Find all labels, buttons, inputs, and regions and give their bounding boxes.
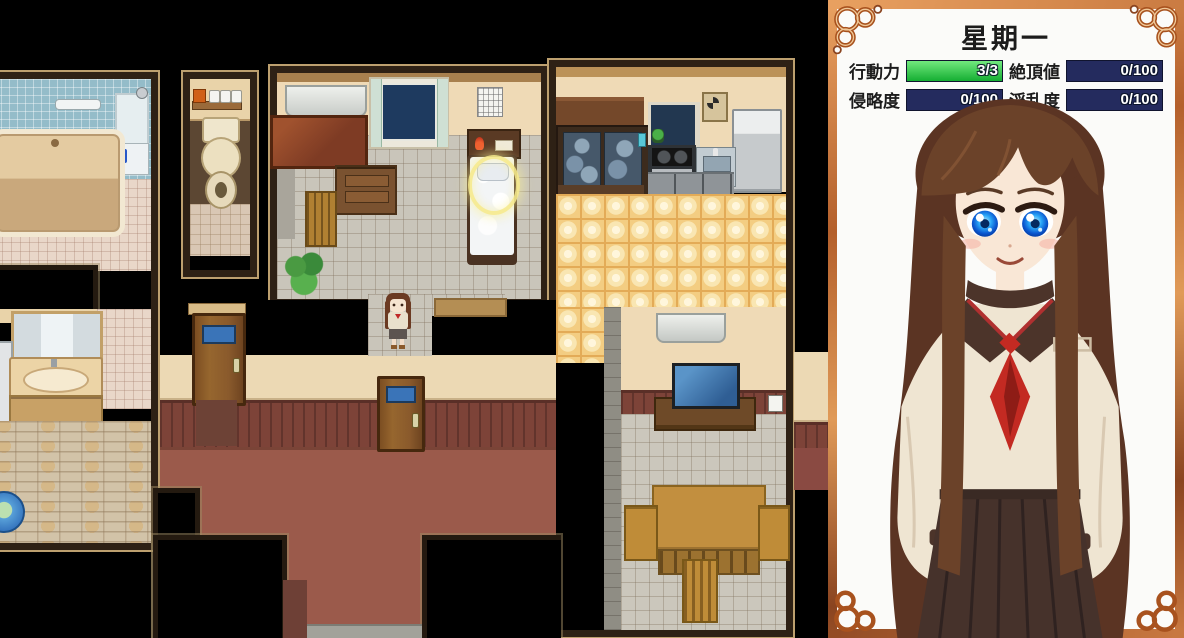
potted-plant — [283, 249, 325, 299]
toilet-floor-tile — [190, 204, 250, 256]
stat-value-climax: 0/100 — [1120, 61, 1158, 81]
room-bedroom — [270, 66, 548, 306]
toilet-door-window — [202, 325, 236, 345]
sink-vanity-top[interactable] — [9, 357, 103, 399]
sink-faucet — [713, 148, 718, 156]
stove-top — [652, 148, 692, 166]
east-hall-wall — [794, 352, 828, 422]
refrigerator[interactable] — [732, 109, 782, 193]
bedroom-door-handle — [412, 413, 419, 428]
player-sprite[interactable] — [382, 291, 414, 351]
vent-fan — [702, 92, 728, 122]
toilet-door-shadow — [196, 400, 237, 446]
bedroom-window[interactable] — [369, 77, 449, 149]
toilet-bowl[interactable] — [205, 171, 237, 209]
frame-corner-ornament — [831, 3, 885, 57]
toilet-bowl-hole — [215, 182, 227, 198]
bed-glow-highlight[interactable] — [468, 155, 520, 215]
toilet-paper-roll — [220, 90, 231, 103]
television[interactable] — [672, 363, 740, 409]
east-hall-floor — [794, 448, 828, 490]
stat-bar-climax: 0/100 — [1066, 60, 1163, 82]
dish-cabinet[interactable] — [556, 125, 650, 205]
stat-bar-action: 3/3 — [906, 60, 1003, 82]
room-toilet — [183, 72, 257, 277]
shower-head — [136, 87, 148, 99]
kitchen-floor — [556, 194, 786, 307]
dresser-drawer — [345, 191, 389, 203]
living-void — [556, 363, 604, 630]
air-conditioner — [285, 85, 367, 117]
day-title: 星期一 — [837, 17, 1175, 56]
washroom-brick-floor — [0, 421, 151, 543]
toilet-paper-roll — [209, 90, 220, 103]
sill-plant — [652, 129, 664, 143]
living-air-conditioner — [656, 313, 726, 343]
lamp-red — [475, 137, 484, 150]
toilet-paper-roll — [231, 90, 242, 103]
shelf-box — [495, 140, 513, 151]
wooden-chair[interactable] — [305, 191, 337, 247]
genkan-entry-strip — [307, 624, 422, 638]
toilet-door[interactable] — [192, 313, 246, 406]
sill-bottle — [638, 133, 646, 147]
bedroom-door[interactable] — [377, 376, 425, 452]
wall-calendar[interactable] — [477, 87, 503, 117]
kitchen-ceiling-trim — [556, 67, 786, 77]
dresser[interactable] — [335, 165, 397, 215]
room-kitchen-living — [549, 60, 793, 637]
dresser-drawer — [345, 175, 389, 187]
bedroom-door-window — [386, 386, 415, 403]
bed[interactable] — [467, 155, 517, 265]
hall-void-right — [422, 535, 561, 638]
faucet — [51, 359, 57, 367]
sink-basin — [703, 156, 731, 172]
dining-table[interactable] — [652, 485, 766, 553]
power-outlet — [768, 395, 783, 412]
east-hall-wainscot — [794, 422, 828, 451]
corridor-shadow — [283, 580, 307, 638]
doormat — [434, 298, 507, 317]
stat-label-climax: 絶頂値 — [1009, 58, 1060, 83]
window-panes — [381, 83, 437, 141]
dish-cabinet-glass — [604, 132, 642, 186]
hall-void-left — [153, 535, 287, 638]
towel-bar — [55, 99, 101, 110]
vent-fan-blades — [707, 97, 719, 109]
sink-basin — [23, 367, 89, 393]
bathtub[interactable] — [0, 129, 125, 237]
stat-value-action: 3/3 — [977, 61, 998, 81]
desk[interactable] — [270, 115, 368, 169]
living-floor-shadow-column — [604, 307, 621, 630]
curtain-left — [371, 79, 382, 147]
room-bathroom — [0, 72, 158, 550]
counter-cabinets — [648, 172, 734, 196]
chair-left[interactable] — [624, 505, 658, 561]
kitchen-floor-column — [556, 307, 604, 363]
status-panel: 星期一 行動力 3/3 絶頂値 0/100 侵略度 0/100 淫乱度 0/10… — [828, 0, 1184, 638]
washroom-tile-strip — [97, 309, 151, 409]
chair-bottom[interactable] — [682, 559, 718, 623]
character-portrait — [837, 95, 1175, 638]
shelf-box-orange — [193, 89, 206, 103]
toilet-door-handle — [233, 358, 240, 373]
frame-corner-ornament — [1127, 3, 1181, 57]
stat-label-action: 行動力 — [849, 58, 900, 83]
bedroom-floor-shadow — [277, 161, 295, 239]
dish-cabinet-glass — [563, 132, 601, 186]
chair-right[interactable] — [758, 505, 790, 561]
game-map[interactable] — [0, 0, 828, 638]
curtain-right — [437, 79, 448, 147]
bathtub-drain — [51, 139, 59, 147]
